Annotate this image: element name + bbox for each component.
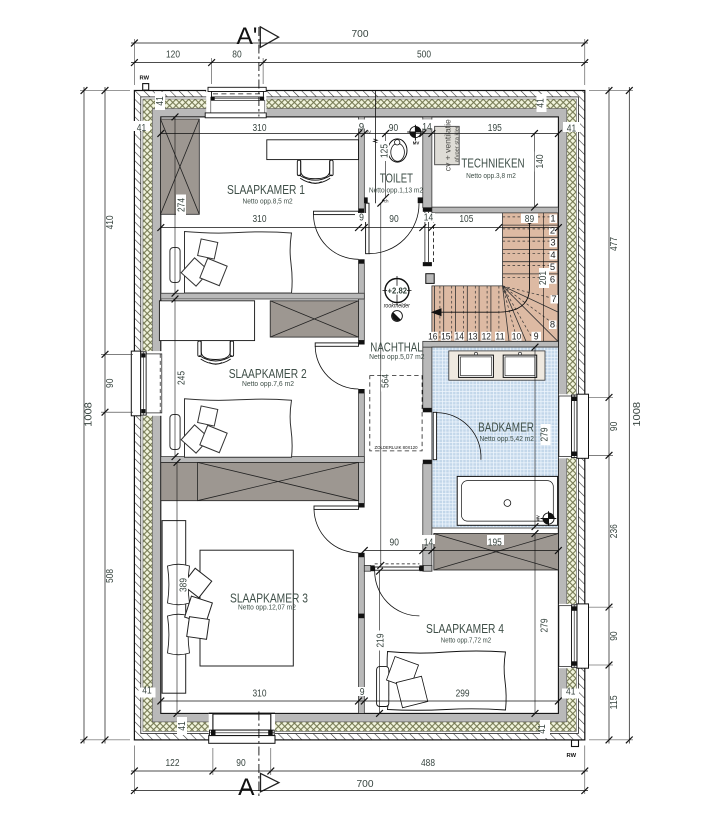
svg-text:219: 219: [375, 634, 386, 648]
svg-text:7: 7: [551, 293, 556, 304]
svg-text:310: 310: [253, 123, 267, 134]
svg-text:195: 195: [488, 123, 502, 134]
svg-text:12: 12: [482, 330, 491, 341]
svg-text:279: 279: [540, 428, 551, 442]
svg-text:15: 15: [441, 330, 450, 341]
svg-text:700: 700: [352, 29, 369, 40]
svg-text:TECHNIEKEN: TECHNIEKEN: [461, 156, 524, 171]
svg-text:RW: RW: [567, 753, 577, 759]
svg-text:90: 90: [236, 758, 246, 769]
svg-text:41: 41: [142, 686, 151, 697]
svg-text:Netto opp.7,72 m2: Netto opp.7,72 m2: [441, 636, 491, 645]
svg-text:14: 14: [424, 537, 434, 548]
svg-text:508: 508: [105, 569, 116, 583]
svg-text:90: 90: [105, 378, 116, 388]
svg-text:389: 389: [178, 578, 189, 592]
svg-text:90: 90: [609, 631, 620, 641]
svg-text:9: 9: [534, 331, 539, 342]
svg-text:8: 8: [550, 319, 555, 330]
svg-text:Netto opp.1,13 m2: Netto opp.1,13 m2: [369, 185, 423, 194]
svg-text:90: 90: [389, 123, 399, 134]
svg-text:310: 310: [253, 214, 267, 225]
svg-text:Netto opp.7,6 m2: Netto opp.7,6 m2: [242, 379, 294, 388]
svg-text:122: 122: [166, 758, 180, 769]
svg-text:201: 201: [538, 271, 549, 285]
svg-text:120: 120: [166, 49, 180, 60]
svg-text:+2.82: +2.82: [388, 287, 408, 296]
svg-text:477: 477: [609, 237, 620, 251]
svg-text:A: A: [238, 774, 255, 801]
svg-text:rookmelder: rookmelder: [384, 303, 411, 310]
svg-text:1008: 1008: [84, 402, 95, 427]
svg-text:41: 41: [155, 96, 166, 105]
svg-text:41: 41: [566, 687, 575, 698]
svg-text:115: 115: [609, 695, 620, 709]
svg-text:41: 41: [567, 124, 576, 135]
svg-text:236: 236: [609, 524, 620, 538]
svg-text:90: 90: [390, 537, 400, 548]
svg-text:Netto opp.3,8 m2: Netto opp.3,8 m2: [466, 171, 516, 180]
svg-text:310: 310: [253, 689, 267, 700]
svg-text:9: 9: [359, 122, 364, 133]
svg-text:SLAAPKAMER 1: SLAAPKAMER 1: [227, 182, 305, 197]
svg-text:105: 105: [459, 214, 473, 225]
svg-text:16: 16: [428, 330, 437, 341]
svg-text:Netto opp.5,07 m2: Netto opp.5,07 m2: [369, 352, 424, 361]
svg-text:2: 2: [550, 225, 555, 236]
svg-text:MV: MV: [536, 515, 541, 522]
svg-text:Netto opp.12,07 m2: Netto opp.12,07 m2: [238, 603, 296, 612]
svg-text:564: 564: [381, 374, 392, 388]
svg-text:Netto opp.8,5 m2: Netto opp.8,5 m2: [243, 197, 293, 206]
svg-text:9: 9: [360, 687, 365, 698]
svg-text:TOILET: TOILET: [380, 170, 413, 185]
svg-text:14: 14: [424, 213, 434, 224]
svg-text:140: 140: [535, 154, 546, 168]
svg-text:MV: MV: [413, 141, 420, 146]
svg-text:274: 274: [176, 198, 187, 212]
svg-text:SLAAPKAMER 4: SLAAPKAMER 4: [426, 621, 504, 636]
svg-text:488: 488: [421, 758, 435, 769]
svg-text:Netto opp.5,42 m2: Netto opp.5,42 m2: [480, 434, 534, 443]
svg-text:41: 41: [536, 98, 547, 107]
svg-text:410: 410: [105, 215, 116, 229]
svg-text:ch: ch: [384, 199, 389, 204]
svg-text:700: 700: [357, 779, 374, 790]
svg-text:cv + ventilatie: cv + ventilatie: [444, 119, 453, 171]
svg-text:11: 11: [495, 330, 504, 341]
svg-text:13: 13: [468, 330, 477, 341]
svg-text:10: 10: [512, 330, 521, 341]
svg-text:14: 14: [422, 122, 432, 133]
svg-text:89: 89: [525, 214, 534, 225]
svg-text:BADKAMER: BADKAMER: [478, 420, 534, 435]
svg-text:6: 6: [550, 273, 555, 284]
svg-text:80: 80: [232, 49, 242, 60]
svg-text:41: 41: [137, 123, 146, 134]
svg-text:A': A': [236, 23, 257, 50]
svg-text:3: 3: [550, 237, 555, 248]
svg-text:5: 5: [550, 261, 555, 272]
svg-text:90: 90: [609, 421, 620, 431]
svg-text:299: 299: [456, 689, 470, 700]
svg-text:195: 195: [488, 537, 502, 548]
svg-text:90: 90: [389, 214, 399, 225]
svg-text:1: 1: [550, 213, 555, 224]
svg-text:14: 14: [455, 331, 465, 342]
svg-text:245: 245: [176, 371, 187, 385]
svg-text:RW: RW: [140, 76, 150, 82]
svg-text:41: 41: [177, 721, 188, 730]
svg-text:500: 500: [417, 49, 431, 60]
svg-text:afvoer sta kler: afvoer sta kler: [454, 126, 460, 162]
svg-text:125: 125: [379, 144, 390, 158]
svg-text:279: 279: [540, 619, 551, 633]
svg-text:9: 9: [359, 213, 364, 224]
svg-text:1008: 1008: [632, 401, 643, 426]
svg-text:4: 4: [550, 249, 555, 260]
svg-text:41: 41: [537, 724, 548, 733]
